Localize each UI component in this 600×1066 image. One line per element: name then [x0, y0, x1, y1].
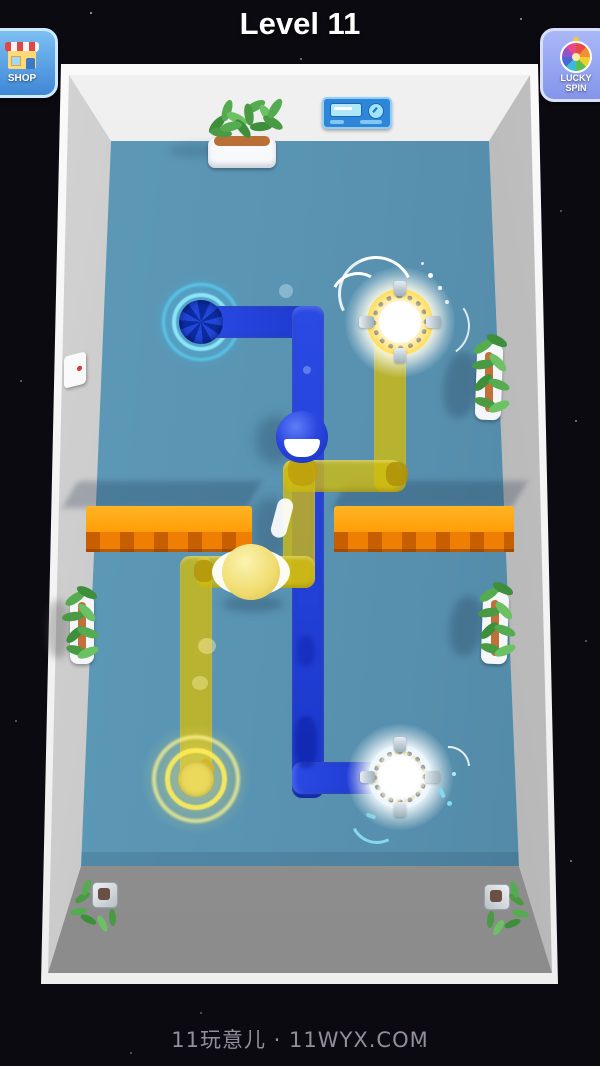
panel-screen-line — [334, 107, 352, 110]
panel-tab — [330, 120, 344, 124]
orange-barrier-right — [334, 506, 514, 552]
pipe-mottle — [295, 716, 317, 768]
portal-clip — [394, 737, 406, 752]
leaf — [80, 878, 92, 896]
leaf — [486, 911, 494, 929]
sparkle-dot — [445, 300, 449, 304]
yellow-elbow-patch — [386, 462, 408, 486]
sparkle-dot — [428, 273, 433, 278]
pot-soil — [98, 888, 110, 900]
pipe-mottle — [297, 636, 315, 666]
corner-plant-bottom-right — [476, 878, 530, 940]
bubble — [279, 284, 293, 298]
leaf — [79, 913, 97, 927]
portal-clip — [360, 771, 375, 783]
sparkle-dot — [438, 286, 442, 290]
bubble — [303, 366, 311, 374]
corner-plant-bottom-left — [70, 876, 124, 936]
watermark: 11玩意儿 · 11WYX.COM — [0, 1024, 600, 1054]
droplet — [452, 772, 456, 776]
pot-soil — [490, 890, 502, 902]
barrier-shadow-left — [62, 481, 262, 508]
bubble — [192, 676, 208, 690]
droplet — [447, 801, 452, 806]
barrier-top-face — [86, 506, 252, 532]
sparkle-dot — [421, 262, 424, 265]
bubble — [198, 638, 216, 654]
panel-screen — [330, 103, 362, 117]
leaf — [503, 917, 521, 931]
blue-character[interactable] — [276, 411, 328, 463]
barrier-front-face — [334, 532, 514, 552]
planter-right-lower — [476, 584, 520, 672]
planter-top — [204, 94, 284, 172]
game-screen: Level 11 SHOP LUCKY SPIN — [0, 0, 600, 1066]
barrier-top-face — [334, 506, 514, 532]
planter-left — [62, 586, 102, 672]
switch-light — [77, 365, 82, 371]
portal-clip — [394, 348, 406, 363]
yellow-elbow-patch — [194, 560, 214, 582]
leaf — [266, 97, 285, 121]
panel-tab — [360, 120, 382, 124]
wall-switch — [64, 351, 86, 388]
yellow-character[interactable] — [212, 542, 294, 604]
leaf — [108, 909, 116, 927]
planter-right-upper — [470, 336, 514, 428]
yellow-drain-hub — [178, 761, 214, 797]
leaf — [95, 914, 110, 932]
game-board[interactable] — [0, 0, 600, 1066]
control-panel — [322, 97, 392, 129]
floor-edge-shade — [81, 852, 521, 866]
yellow-ball — [222, 544, 280, 600]
leaf — [512, 909, 530, 919]
panel-dial — [368, 103, 384, 119]
planter-soil — [214, 136, 270, 146]
blue-drain-hub — [179, 300, 223, 344]
